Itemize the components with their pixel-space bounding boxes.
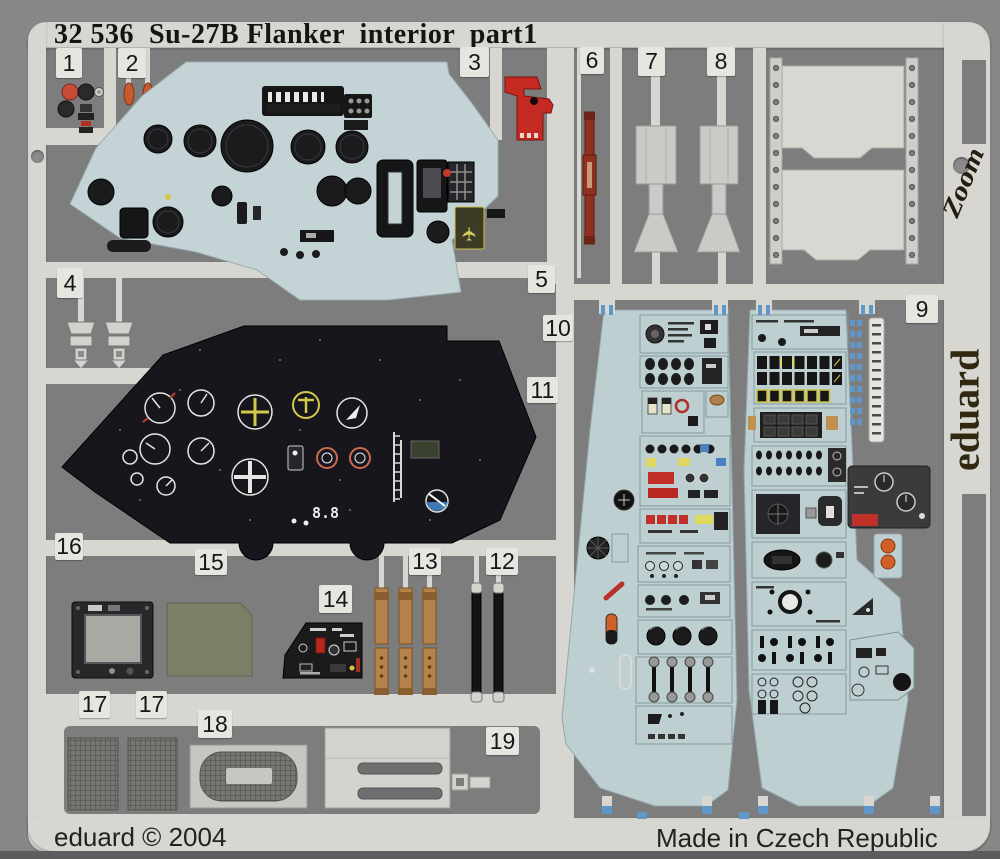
part-label-15: 15 xyxy=(195,549,227,575)
part-12-straps xyxy=(471,556,504,712)
dark-main-panel: 8.8 xyxy=(62,326,536,560)
part-19-plate xyxy=(325,728,490,808)
part-1-details xyxy=(58,84,104,133)
part-13-belts xyxy=(374,556,437,706)
part-label-2: 2 xyxy=(118,48,146,78)
part-label-4: 4 xyxy=(57,268,83,298)
left-console xyxy=(562,310,737,806)
part-label-7: 7 xyxy=(638,47,665,76)
sheet-title: 32 536 Su-27B Flanker interior part1 xyxy=(54,21,538,49)
part-label-16: 16 xyxy=(55,533,83,560)
part-17b-mesh xyxy=(128,738,177,810)
part-label-17a: 17 xyxy=(79,691,110,718)
right-extras xyxy=(848,318,930,700)
eduard-vertical-logo: eduard xyxy=(941,295,989,525)
part-label-5: 5 xyxy=(528,265,555,293)
part-label-13: 13 xyxy=(409,548,441,575)
svg-text:✈: ✈ xyxy=(459,226,481,242)
part-label-12: 12 xyxy=(486,548,518,575)
part-label-9: 9 xyxy=(906,295,938,323)
part-6-strip xyxy=(577,48,596,278)
photoetch-sheet-photo: ✈ xyxy=(0,0,1000,859)
part-3-upper-panel: ✈ xyxy=(70,62,505,300)
photo-bottom-shadow xyxy=(0,851,1000,859)
part-label-17b: 17 xyxy=(136,691,167,718)
part-label-6: 6 xyxy=(580,47,604,74)
part-label-18: 18 xyxy=(198,710,232,738)
part-label-14: 14 xyxy=(319,585,352,613)
copyright-text: eduard © 2004 xyxy=(54,822,226,853)
part-label-1: 1 xyxy=(56,48,82,78)
panel-readout: 8.8 xyxy=(312,504,339,522)
part-label-19: 19 xyxy=(486,727,519,755)
made-in-text: Made in Czech Republic xyxy=(656,823,938,854)
olive-panel xyxy=(167,603,252,676)
part-label-8: 8 xyxy=(707,47,735,76)
part-label-10: 10 xyxy=(543,315,573,341)
part-label-11: 11 xyxy=(527,377,558,403)
part-red-handle xyxy=(505,77,553,140)
part-18-mesh-panel xyxy=(190,745,307,808)
seat-plates xyxy=(770,58,918,264)
part-14-wedge xyxy=(283,623,362,678)
part-17a-mesh xyxy=(68,738,118,810)
parts-7-8-funnels xyxy=(634,48,740,284)
part-16-mfd xyxy=(72,602,153,678)
part-label-3: 3 xyxy=(460,47,489,77)
